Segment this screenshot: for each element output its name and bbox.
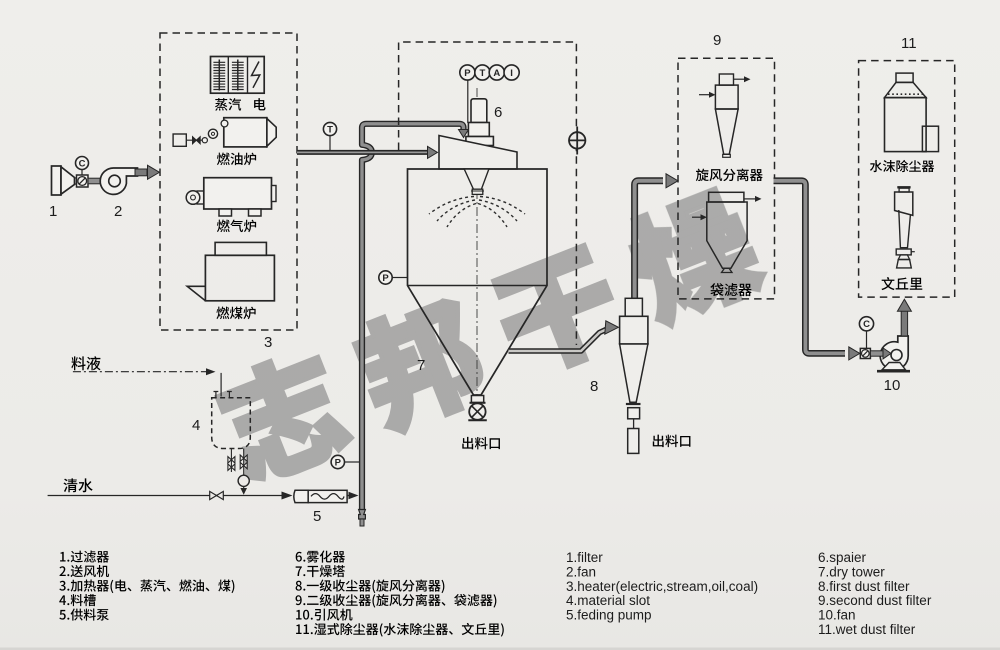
svg-text:P: P — [382, 273, 389, 284]
svg-text:5.feding pump: 5.feding pump — [566, 608, 652, 623]
svg-text:8: 8 — [590, 378, 598, 395]
svg-text:P: P — [464, 68, 471, 79]
svg-text:T: T — [479, 68, 485, 79]
svg-text:C: C — [863, 319, 870, 330]
svg-text:11.wet dust filter: 11.wet dust filter — [818, 622, 916, 637]
svg-text:9.second dust filter: 9.second dust filter — [818, 593, 932, 608]
svg-text:7.dry tower: 7.dry tower — [818, 564, 885, 579]
svg-text:10.fan: 10.fan — [818, 608, 856, 623]
svg-text:11: 11 — [901, 35, 917, 52]
svg-text:2: 2 — [114, 203, 122, 220]
svg-text:8.first dust filter: 8.first dust filter — [818, 579, 910, 594]
svg-text:A: A — [493, 68, 500, 79]
svg-text:2.fan: 2.fan — [566, 564, 596, 579]
svg-text:4: 4 — [192, 417, 200, 434]
svg-text:3.heater(electric,stream,oil,c: 3.heater(electric,stream,oil,coal) — [566, 579, 758, 594]
svg-text:1: 1 — [49, 203, 57, 220]
svg-text:6: 6 — [494, 104, 502, 121]
svg-text:I: I — [510, 68, 513, 79]
svg-text:5: 5 — [313, 508, 321, 525]
svg-text:4.material slot: 4.material slot — [566, 593, 650, 608]
svg-text:10: 10 — [884, 377, 901, 394]
svg-text:1.filter: 1.filter — [566, 550, 603, 565]
svg-text:6.spaier: 6.spaier — [818, 550, 867, 565]
svg-text:C: C — [79, 158, 86, 169]
svg-text:T: T — [327, 124, 333, 135]
svg-text:9: 9 — [713, 32, 721, 49]
svg-text:7: 7 — [417, 357, 425, 374]
svg-text:3: 3 — [264, 334, 272, 351]
svg-text:P: P — [335, 457, 342, 468]
